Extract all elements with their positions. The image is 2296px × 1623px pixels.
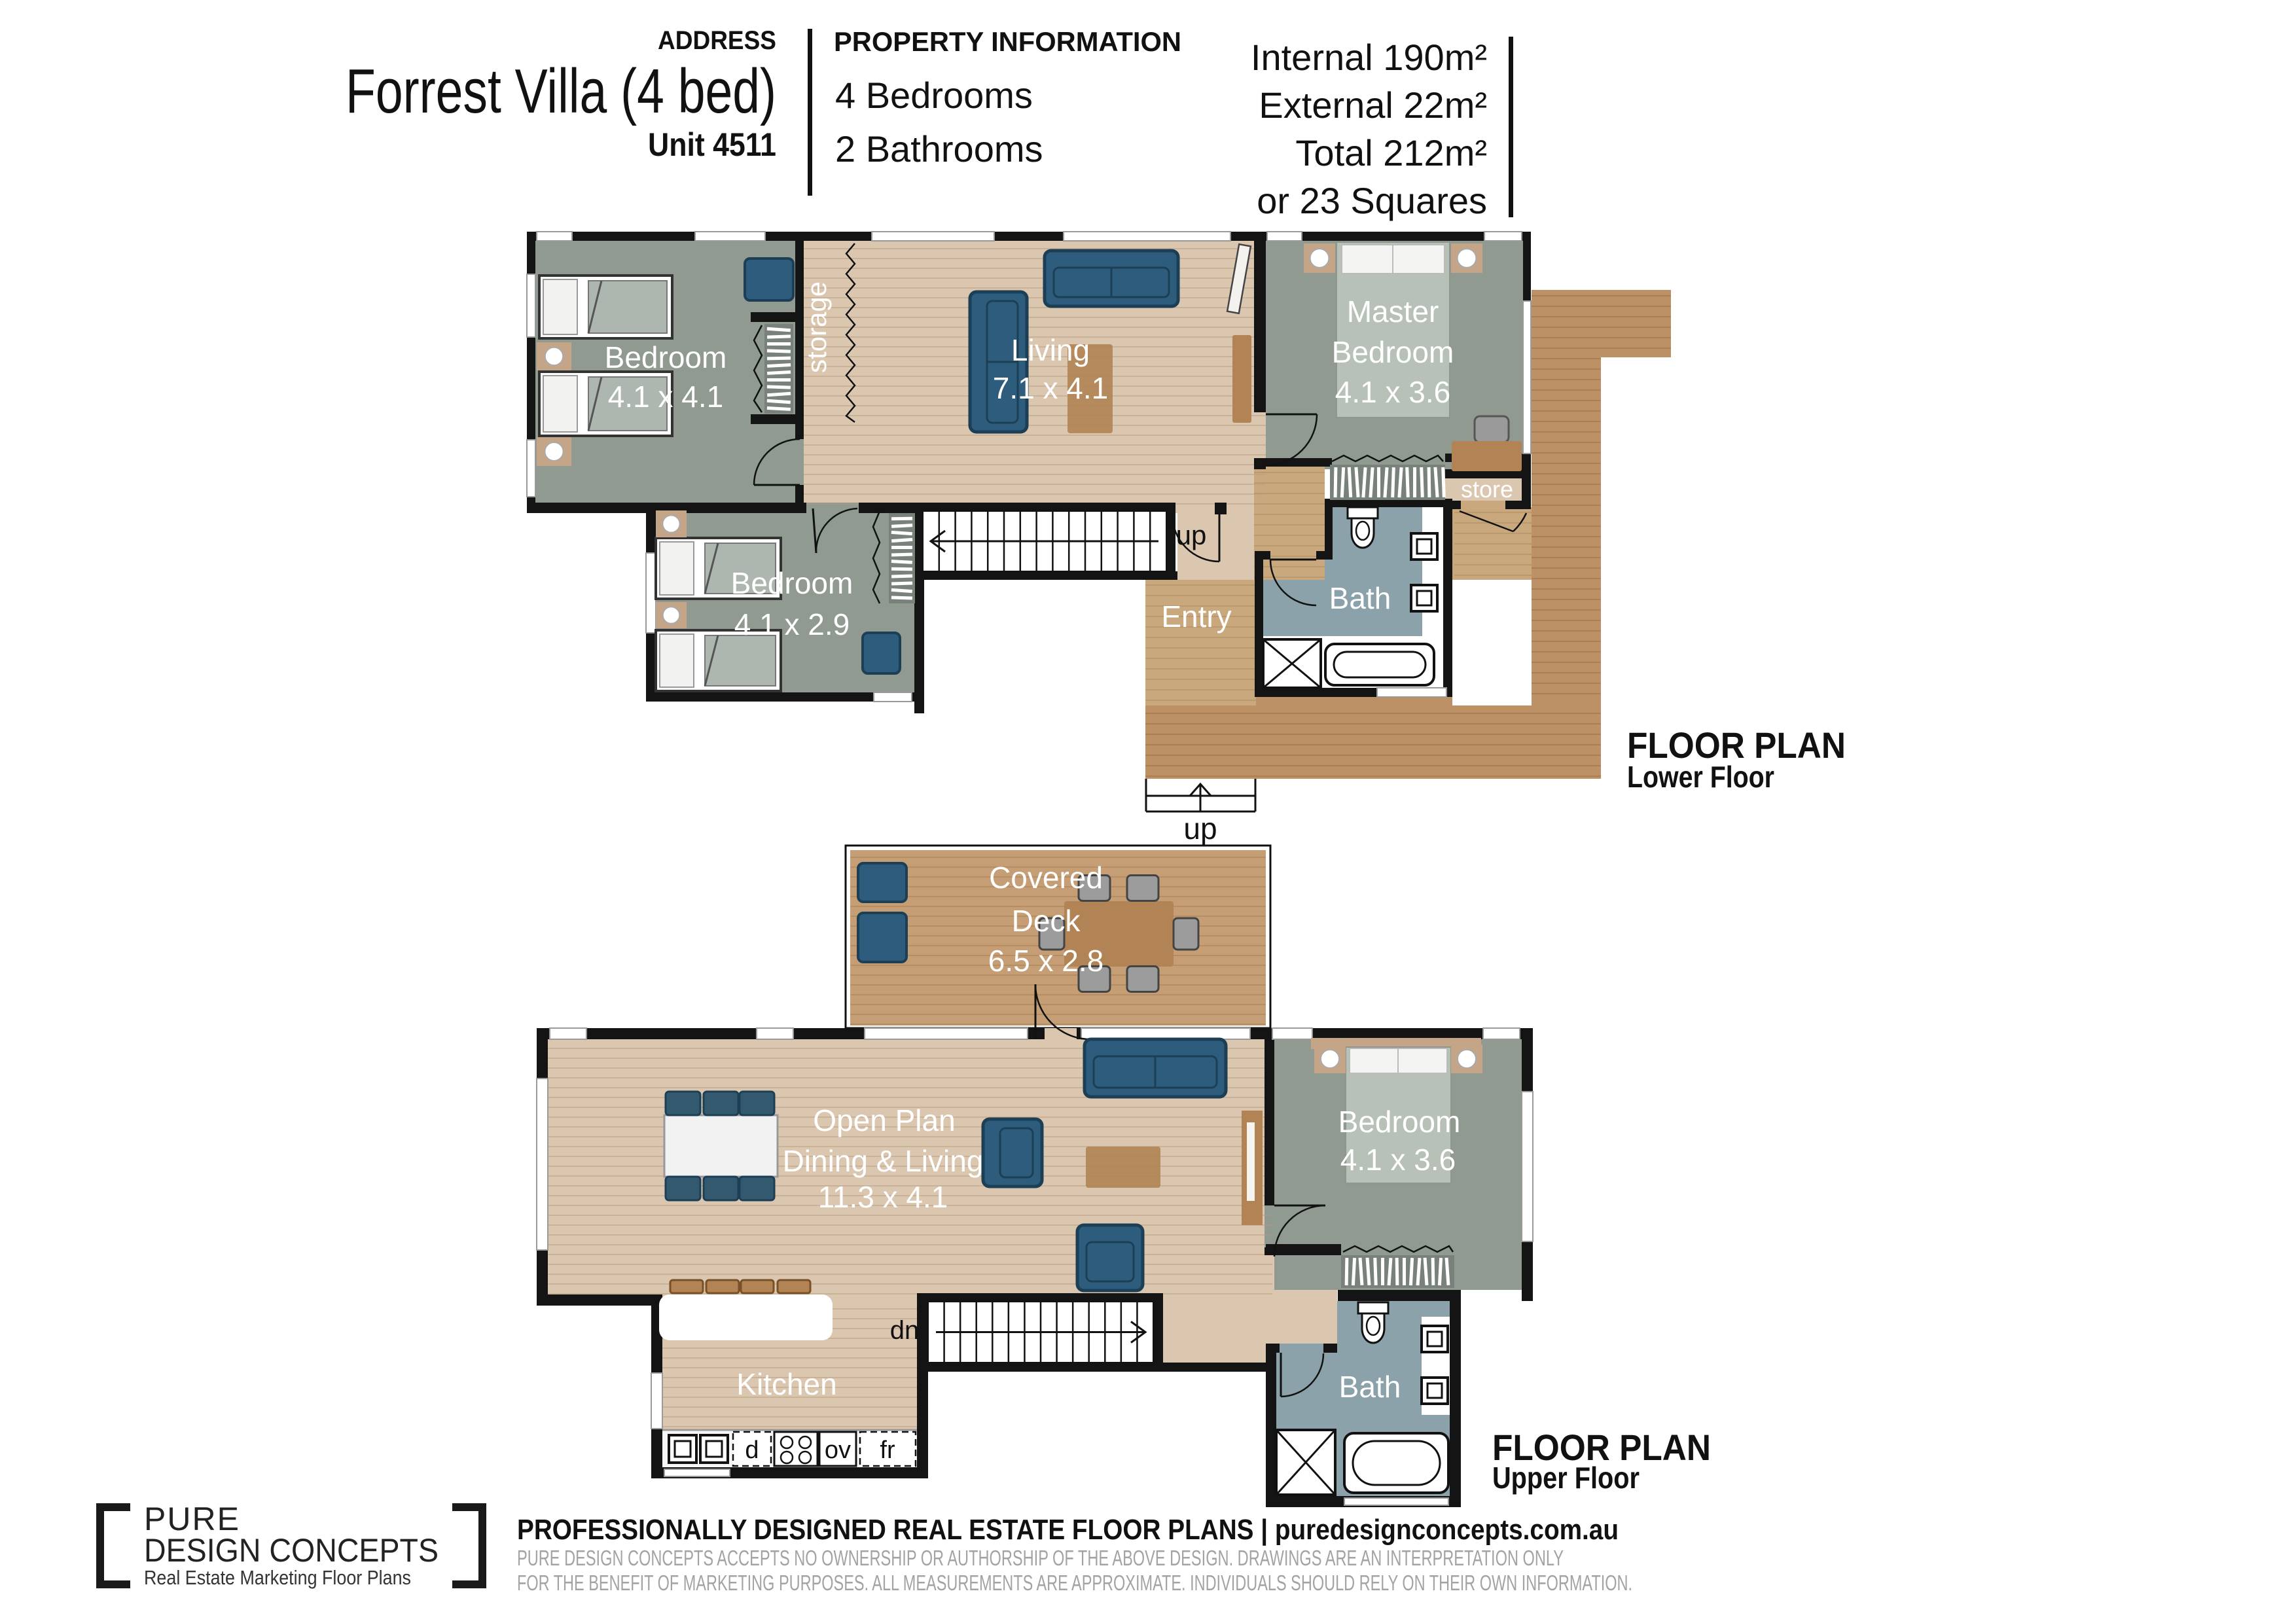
svg-text:4.1 x 4.1: 4.1 x 4.1 [608,380,723,414]
svg-text:PROPERTY INFORMATION: PROPERTY INFORMATION [834,26,1181,57]
svg-text:Upper Floor: Upper Floor [1492,1461,1640,1495]
svg-text:Open Plan: Open Plan [813,1103,955,1137]
svg-text:Deck: Deck [1012,904,1081,938]
svg-text:Real Estate Marketing Floor Pl: Real Estate Marketing Floor Plans [144,1566,411,1589]
svg-text:fr: fr [880,1436,895,1464]
svg-text:4 Bedrooms: 4 Bedrooms [835,75,1033,116]
svg-text:Kitchen: Kitchen [736,1367,836,1401]
svg-text:Internal 190m²: Internal 190m² [1251,37,1487,78]
svg-text:Dining & Living: Dining & Living [783,1144,984,1178]
svg-text:Total 212m²: Total 212m² [1295,132,1487,173]
svg-text:ADDRESS: ADDRESS [658,26,776,55]
svg-text:store: store [1461,476,1513,503]
svg-text:Master: Master [1347,294,1439,329]
svg-text:External 22m²: External 22m² [1259,84,1487,126]
svg-text:up: up [1176,520,1207,550]
svg-text:FOR THE BENEFIT OF MARKETING P: FOR THE BENEFIT OF MARKETING PURPOSES. A… [517,1571,1632,1595]
svg-text:Bedroom: Bedroom [605,340,727,374]
svg-text:6.5 x 2.8: 6.5 x 2.8 [988,944,1103,978]
svg-text:DESIGN CONCEPTS: DESIGN CONCEPTS [144,1532,439,1569]
svg-text:2 Bathrooms: 2 Bathrooms [835,128,1043,169]
svg-text:4.1 x 3.6: 4.1 x 3.6 [1335,375,1450,409]
svg-text:Bedroom: Bedroom [1332,335,1454,369]
svg-text:d: d [745,1436,759,1464]
svg-text:storage: storage [801,281,832,373]
svg-text:ov: ov [825,1436,851,1464]
svg-text:PROFESSIONALLY DESIGNED REAL E: PROFESSIONALLY DESIGNED REAL ESTATE FLOO… [517,1514,1619,1546]
svg-text:Bath: Bath [1329,581,1391,615]
svg-text:or 23 Squares: or 23 Squares [1257,180,1487,221]
svg-text:dn: dn [890,1316,920,1345]
svg-text:Bath: Bath [1339,1370,1401,1404]
svg-text:11.3 x 4.1: 11.3 x 4.1 [818,1180,948,1214]
svg-text:4.1 x 3.6: 4.1 x 3.6 [1340,1143,1456,1177]
svg-text:7.1 x 4.1: 7.1 x 4.1 [993,371,1108,405]
svg-text:Entry: Entry [1161,599,1231,633]
svg-text:Covered: Covered [989,861,1103,895]
svg-text:Lower Floor: Lower Floor [1627,760,1774,794]
svg-text:up: up [1183,811,1217,846]
svg-text:Forrest Villa (4 bed): Forrest Villa (4 bed) [346,56,776,126]
svg-text:PURE DESIGN CONCEPTS ACCEPTS N: PURE DESIGN CONCEPTS ACCEPTS NO OWNERSHI… [517,1546,1564,1570]
svg-text:Bedroom: Bedroom [1338,1105,1461,1139]
svg-text:4.1 x 2.9: 4.1 x 2.9 [734,607,850,641]
svg-text:Unit 4511: Unit 4511 [648,126,776,163]
svg-text:Living: Living [1011,333,1090,367]
svg-text:Bedroom: Bedroom [731,566,853,600]
